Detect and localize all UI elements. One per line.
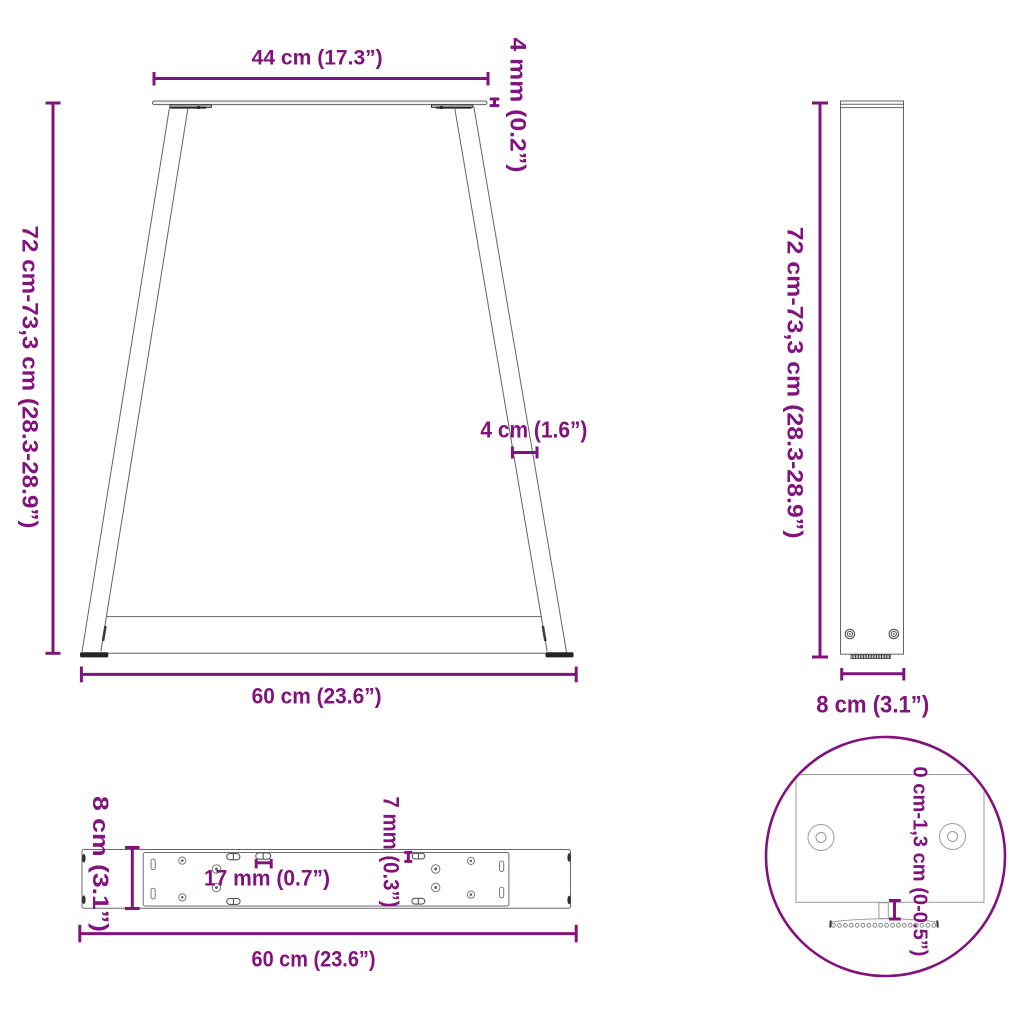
svg-text:4 cm (1.6”): 4 cm (1.6”): [480, 417, 587, 443]
svg-text:4 mm (0.2”): 4 mm (0.2”): [506, 38, 531, 173]
svg-text:60 cm (23.6”): 60 cm (23.6”): [252, 684, 382, 709]
svg-text:72 cm-73,3 cm (28.3-28.9”): 72 cm-73,3 cm (28.3-28.9”): [783, 227, 808, 539]
svg-text:72 cm-73,3 cm (28.3-28.9”): 72 cm-73,3 cm (28.3-28.9”): [18, 226, 43, 529]
svg-text:44 cm (17.3”): 44 cm (17.3”): [252, 47, 383, 70]
svg-text:7 mm (0.3”): 7 mm (0.3”): [379, 797, 404, 908]
svg-text:8 cm (3.1”): 8 cm (3.1”): [88, 796, 113, 932]
svg-text:60 cm (23.6”): 60 cm (23.6”): [252, 947, 376, 972]
svg-text:17 mm (0.7”): 17 mm (0.7”): [204, 866, 330, 891]
svg-text:8 cm (3.1”): 8 cm (3.1”): [816, 692, 929, 719]
svg-text:0 cm-1,3 cm (0-0.5”): 0 cm-1,3 cm (0-0.5”): [909, 767, 931, 957]
